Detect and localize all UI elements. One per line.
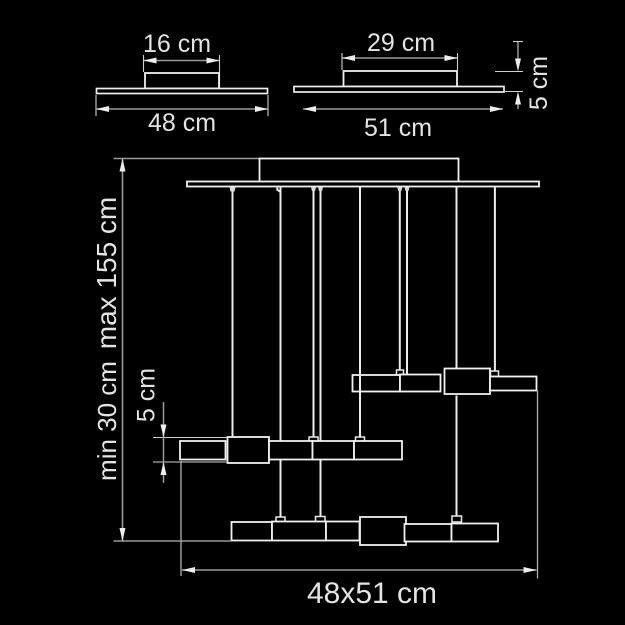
svg-text:5 cm: 5 cm [133, 368, 161, 422]
svg-text:16 cm: 16 cm [143, 30, 211, 58]
svg-text:48 cm: 48 cm [148, 109, 216, 137]
svg-text:min 30 cm: min 30 cm [92, 361, 122, 481]
svg-text:max 155 cm: max 155 cm [91, 197, 122, 350]
svg-text:29 cm: 29 cm [367, 29, 435, 57]
svg-text:51 cm: 51 cm [364, 114, 432, 142]
svg-text:48x51 cm: 48x51 cm [307, 577, 437, 610]
svg-text:5 cm: 5 cm [525, 56, 553, 110]
